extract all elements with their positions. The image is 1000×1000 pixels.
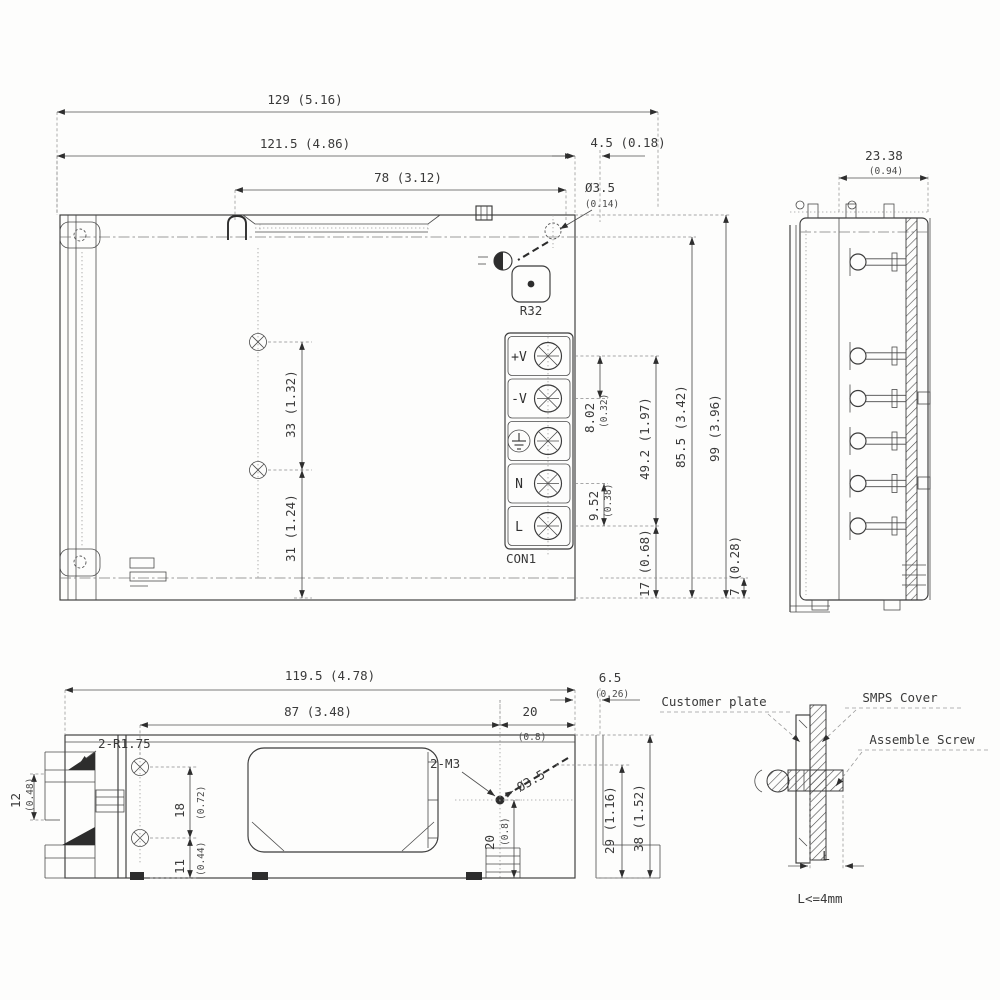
svg-text:38 (1.52): 38 (1.52) [631, 784, 646, 852]
svg-text:129 (5.16): 129 (5.16) [267, 92, 342, 107]
earth-ground-icon [508, 430, 530, 452]
dim-corner-hole: Ø3.5 (0.14) [560, 180, 619, 229]
svg-text:(0.32): (0.32) [599, 394, 610, 428]
connector-label: CON1 [506, 551, 536, 566]
vent-slot [243, 215, 440, 232]
svg-text:119.5 (4.78): 119.5 (4.78) [285, 668, 375, 683]
pcb-holes [250, 248, 313, 598]
front-outline [65, 735, 575, 880]
terminal-block: +V -V N L [505, 333, 573, 556]
dim-hole-span: 87 (3.48) [140, 704, 500, 758]
svg-text:18: 18 [172, 803, 187, 818]
svg-text:85.5 (3.42): 85.5 (3.42) [673, 385, 688, 468]
svg-text:SMPS Cover: SMPS Cover [862, 690, 938, 705]
svg-text:7 (0.28): 7 (0.28) [727, 536, 742, 596]
screw-note: 2-M3 [430, 756, 460, 771]
assemble-screw-section [755, 770, 843, 792]
side-view: 23.38 (0.94) [790, 148, 930, 612]
svg-text:121.5 (4.86): 121.5 (4.86) [260, 136, 350, 151]
dim-hole-height: 29 (1.16) [556, 765, 630, 878]
svg-text:12: 12 [8, 793, 23, 808]
dim-terminal-bottom: 17 (0.68) [575, 526, 750, 598]
dim-terminal-pitch-ac: 9.52 (0.38) [575, 484, 660, 527]
svg-text:(0.8): (0.8) [518, 732, 547, 743]
label-customer-plate: Customer plate [660, 694, 800, 742]
dim-overall-width: 129 (5.16) [57, 92, 658, 215]
svg-text:20: 20 [522, 704, 537, 719]
svg-text:Ø3.5: Ø3.5 [585, 180, 615, 195]
svg-text:9.52: 9.52 [586, 491, 601, 521]
svg-text:4.5 (0.18): 4.5 (0.18) [590, 135, 665, 150]
terminal-l: L [515, 520, 523, 535]
terminal-minus-v: -V [511, 392, 527, 407]
svg-text:17 (0.68): 17 (0.68) [637, 529, 652, 597]
assembly-detail: Customer plate SMPS Cover Assemble Screw… [660, 690, 990, 906]
m3-hole [455, 700, 575, 878]
mechanical-drawing-sheet: R32 +V -V N L [0, 0, 1000, 1000]
dim-side-depth: 23.38 (0.94) [839, 148, 928, 212]
svg-text:Assemble Screw: Assemble Screw [869, 732, 975, 747]
enclosure-outline [60, 215, 575, 600]
dim-hole-right: 20 (0.8) [500, 700, 575, 743]
svg-text:99 (3.96): 99 (3.96) [707, 394, 722, 462]
front-view: 2-M3 Ø3.5 119.5 (4.78) 87 (3.4 [8, 668, 660, 880]
svg-text:(0.14): (0.14) [585, 199, 619, 210]
svg-text:(0.72): (0.72) [196, 786, 207, 820]
terminal-n: N [515, 477, 523, 492]
svg-text:(0.48): (0.48) [25, 778, 36, 812]
dim-vent-width: 78 (3.12) [235, 170, 566, 222]
svg-text:87 (3.48): 87 (3.48) [284, 704, 352, 719]
dim-pcb-hole-pitch: 33 (1.32) [283, 342, 302, 470]
svg-text:23.38: 23.38 [865, 148, 903, 163]
svg-text:49.2 (1.97): 49.2 (1.97) [637, 397, 652, 480]
retention-clip [476, 206, 492, 220]
label-assemble-screw: Assemble Screw [836, 732, 990, 786]
svg-text:6.5: 6.5 [599, 670, 622, 685]
top-view: R32 +V -V N L [57, 92, 750, 600]
dim-terminal-span: 49.2 (1.97) [637, 356, 656, 526]
dim-body-width: 121.5 (4.86) [57, 136, 575, 215]
dim-plate-hole-bottom: 11 (0.44) [150, 838, 207, 878]
dim-slot-height: 12 (0.48) [8, 774, 45, 820]
svg-text:33 (1.32): 33 (1.32) [283, 370, 298, 438]
svg-text:78 (3.12): 78 (3.12) [374, 170, 442, 185]
svg-text:2-R1.75: 2-R1.75 [98, 736, 151, 751]
svg-text:8.02: 8.02 [582, 403, 597, 433]
dim-hole-bottom: 20 (0.8) [482, 800, 522, 878]
svg-text:(0.44): (0.44) [196, 842, 207, 876]
front-hole-dia: Ø3.5 [514, 767, 548, 795]
label-window [248, 748, 438, 852]
pot-label: R32 [520, 303, 543, 318]
svg-text:Customer plate: Customer plate [661, 694, 766, 709]
dim-pcb-hole-bottom: 31 (1.24) [283, 470, 302, 598]
svg-text:(0.8): (0.8) [500, 817, 511, 846]
svg-text:L<=4mm: L<=4mm [797, 891, 842, 906]
terminal-plus-v: +V [511, 350, 527, 365]
u-notch [228, 216, 246, 240]
svg-text:29 (1.16): 29 (1.16) [602, 786, 617, 854]
svg-text:20: 20 [482, 835, 497, 850]
svg-text:31 (1.24): 31 (1.24) [283, 494, 298, 562]
dim-plate-hole-pitch: 18 (0.72) [150, 767, 207, 838]
svg-text:L: L [822, 848, 830, 863]
side-body [790, 201, 930, 612]
svg-text:11: 11 [172, 859, 187, 874]
plate-bracket [45, 745, 149, 878]
potentiometer [512, 266, 550, 302]
svg-text:(0.26): (0.26) [595, 689, 629, 700]
smps-dimension-drawing: R32 +V -V N L [0, 0, 1000, 1000]
svg-text:(0.94): (0.94) [869, 166, 903, 177]
svg-text:(0.38): (0.38) [603, 484, 614, 518]
